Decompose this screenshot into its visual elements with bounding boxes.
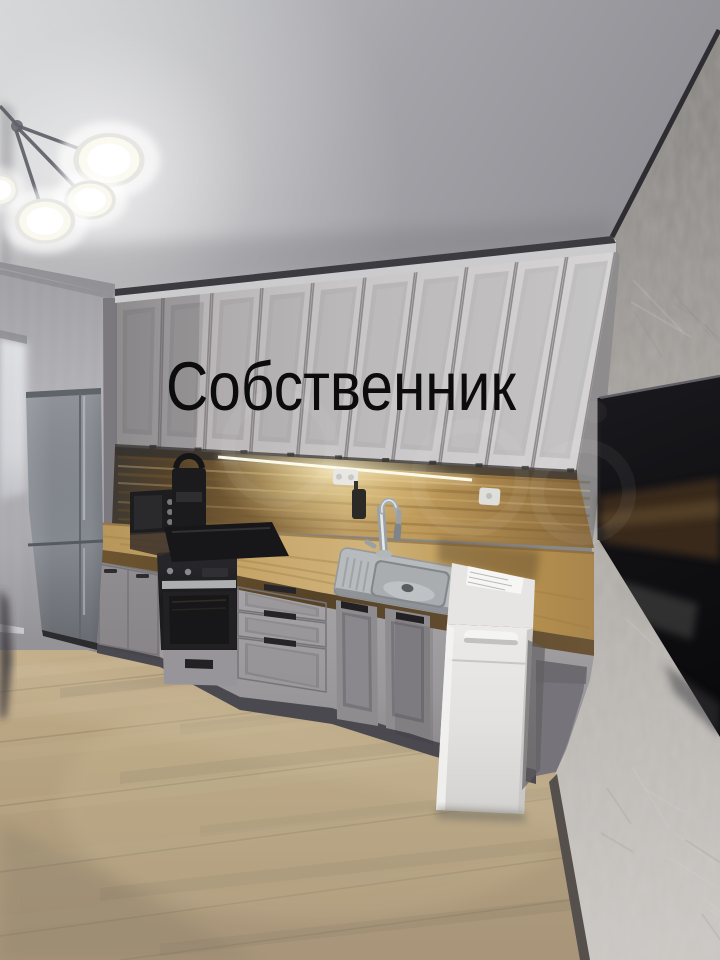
svg-text:Собственник: Собственник (166, 348, 517, 425)
